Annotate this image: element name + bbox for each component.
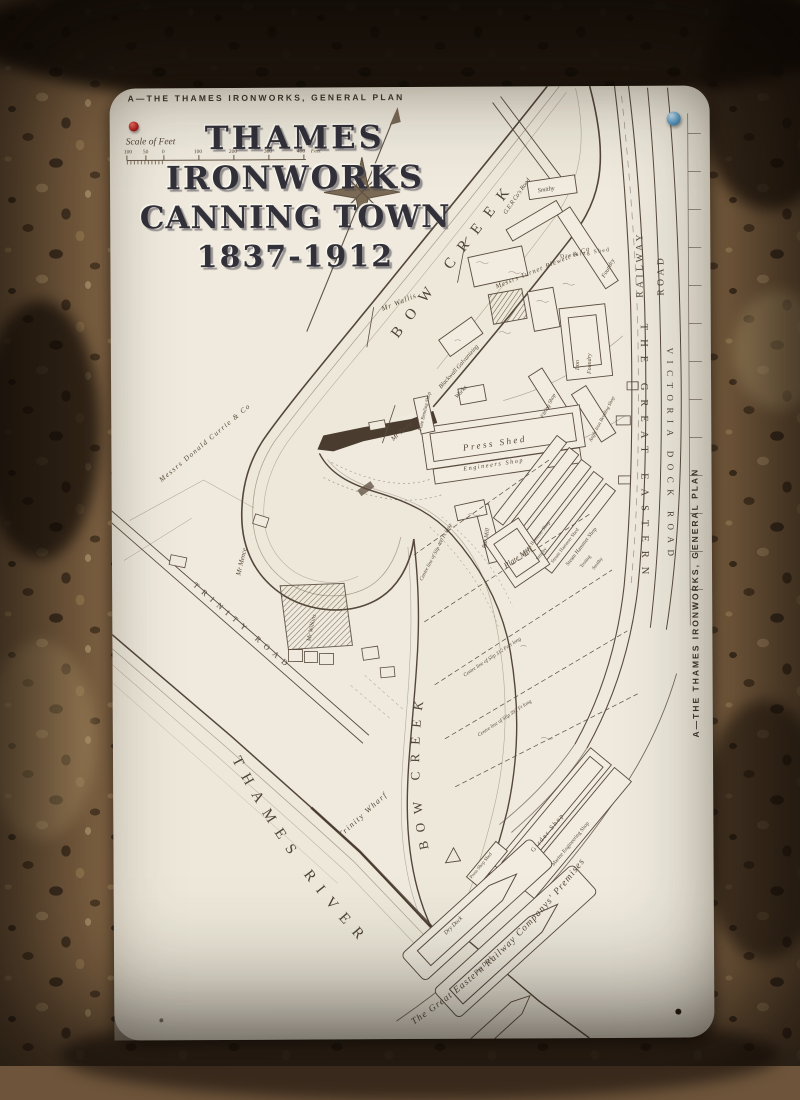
photo-vignette xyxy=(0,0,800,1066)
